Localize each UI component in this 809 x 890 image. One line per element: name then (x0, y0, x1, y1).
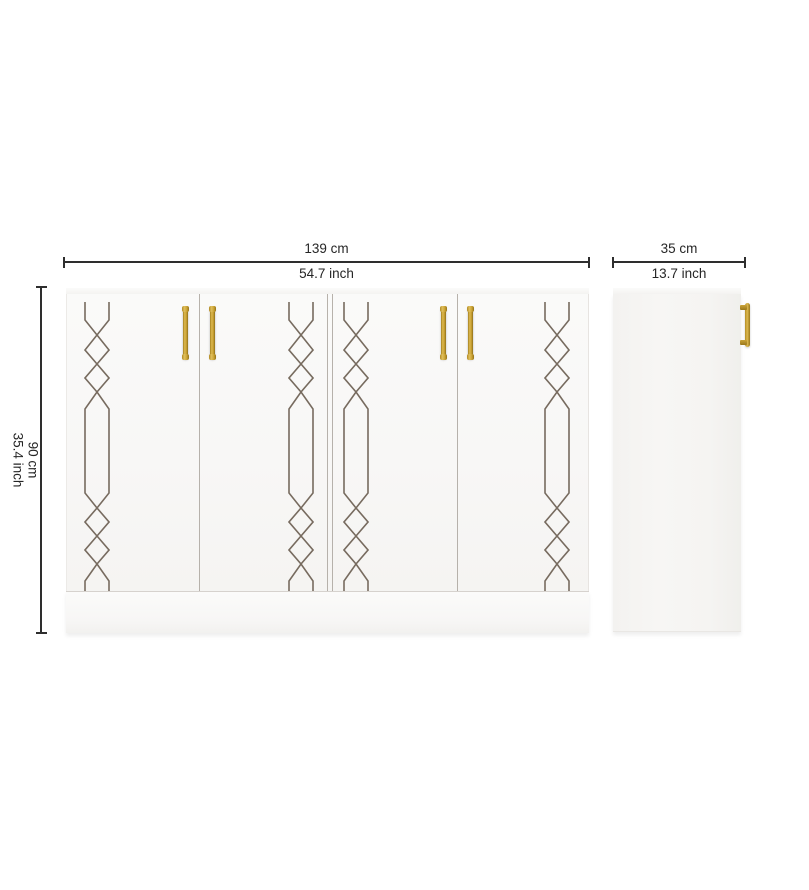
dimension-tick (588, 257, 590, 268)
depth-inch-label: 13.7 inch (652, 266, 707, 281)
door-ornament-pattern (288, 302, 314, 594)
dimension-tick (36, 286, 47, 288)
dimension-tick (63, 257, 65, 268)
cabinet-base-plinth (66, 591, 589, 633)
handle-mount-post (740, 305, 747, 310)
dimension-tick (612, 257, 614, 268)
door-handle (441, 307, 446, 359)
door-ornament-pattern (84, 302, 110, 594)
door-seam (332, 294, 333, 591)
width-inch-label: 54.7 inch (299, 266, 354, 281)
cabinet-doors (66, 294, 589, 591)
handle-mount-post (740, 340, 747, 345)
product-dimension-diagram: 139 cm 54.7 inch 35 cm 13.7 inch 90 cm 3… (0, 0, 809, 890)
depth-dimension-line (612, 261, 746, 263)
door-handle (468, 307, 473, 359)
dimension-tick (744, 257, 746, 268)
door-seam (199, 294, 200, 591)
cabinet-side-view (613, 288, 741, 632)
height-inch-label: 35.4 inch (11, 433, 26, 488)
door-ornament-pattern (343, 302, 369, 594)
door-seam (327, 294, 328, 591)
cabinet-side-panel (613, 294, 741, 632)
height-cm-label: 90 cm (26, 442, 41, 479)
depth-cm-label: 35 cm (661, 241, 698, 256)
dimension-tick (36, 632, 47, 634)
door-handle (183, 307, 188, 359)
width-dimension-line (63, 261, 590, 263)
width-cm-label: 139 cm (304, 241, 348, 256)
door-seam (457, 294, 458, 591)
cabinet-front-view (66, 288, 589, 632)
door-handle (210, 307, 215, 359)
door-ornament-pattern (544, 302, 570, 594)
